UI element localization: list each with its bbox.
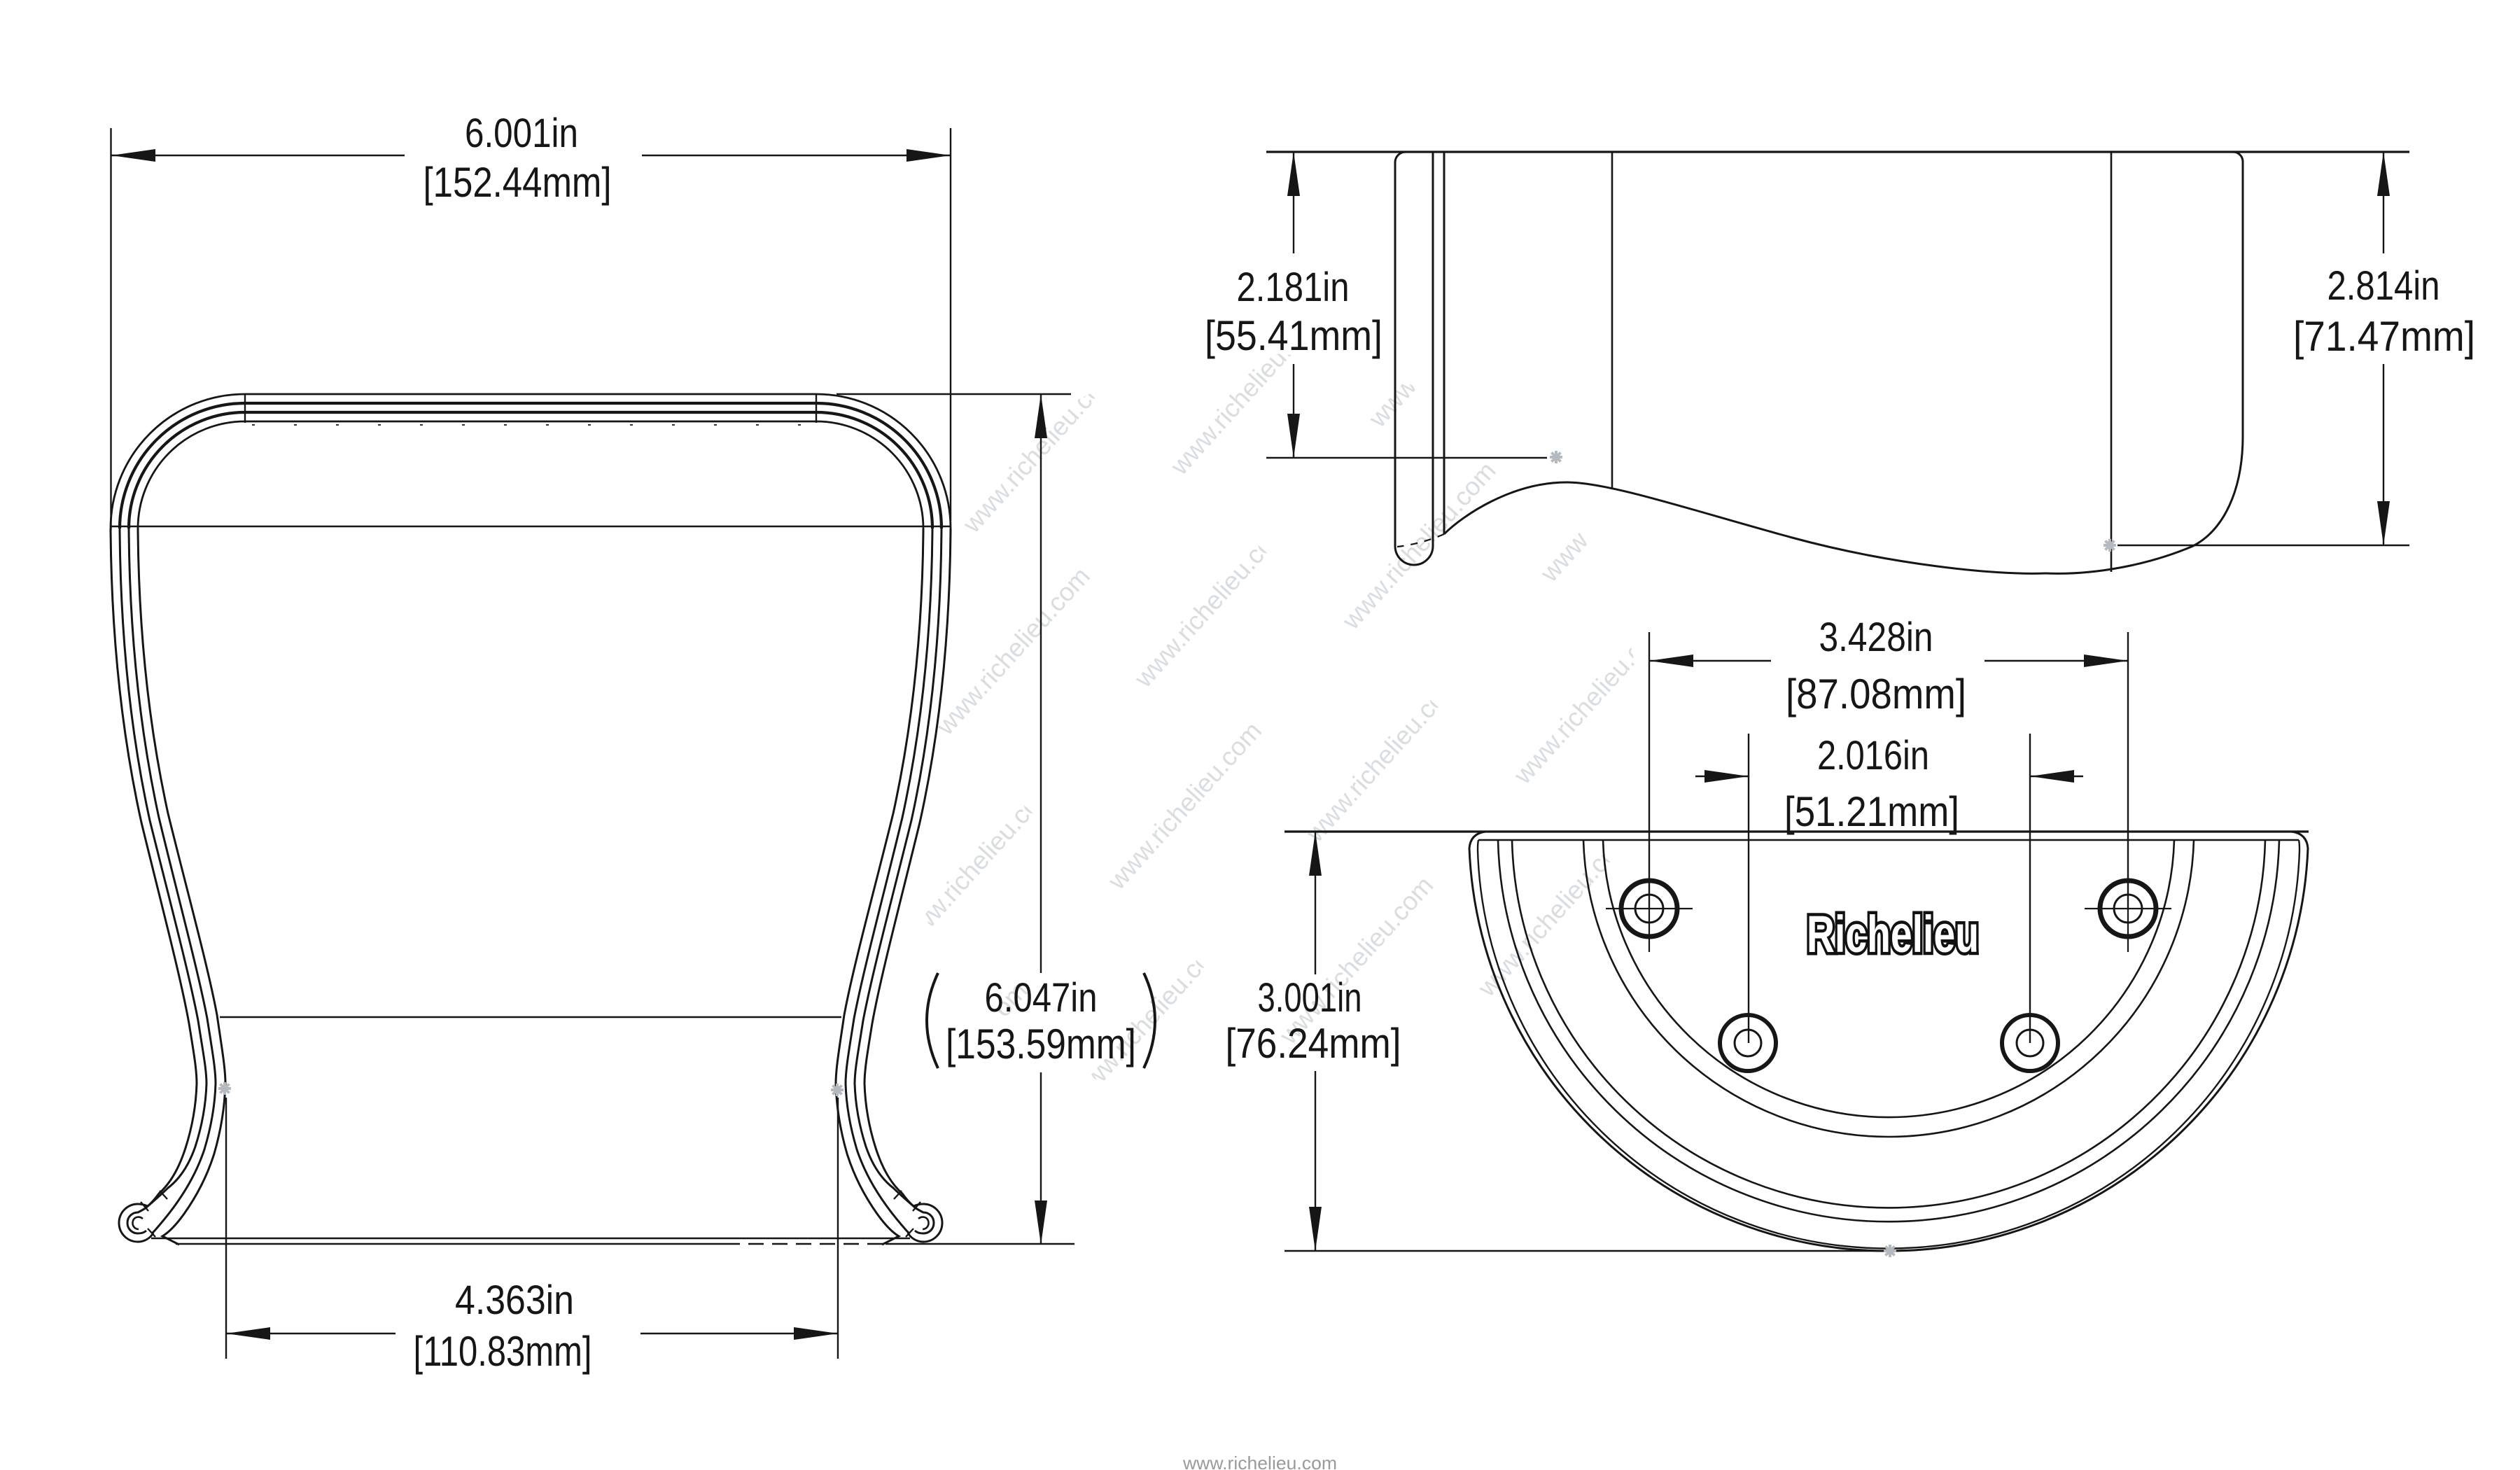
svg-text:Richelieu: Richelieu — [1807, 905, 1979, 963]
svg-text:2.016in: 2.016in — [1817, 733, 1929, 778]
svg-text:6.001in: 6.001in — [465, 111, 578, 156]
svg-text:[87.08mm]: [87.08mm] — [1786, 671, 1966, 717]
svg-text:[55.41mm]: [55.41mm] — [1205, 312, 1382, 359]
svg-text:[110.83mm]: [110.83mm] — [414, 1328, 592, 1375]
svg-text:3.428in: 3.428in — [1819, 615, 1933, 660]
svg-text:3.001in: 3.001in — [1258, 975, 1362, 1021]
svg-text:2.181in: 2.181in — [1237, 265, 1350, 310]
svg-text:[76.24mm]: [76.24mm] — [1226, 1020, 1401, 1067]
svg-text:[153.59mm]: [153.59mm] — [946, 1021, 1136, 1067]
svg-text:[152.44mm]: [152.44mm] — [423, 159, 612, 206]
svg-text:6.047in: 6.047in — [985, 975, 1098, 1021]
svg-text:[51.21mm]: [51.21mm] — [1784, 788, 1959, 835]
svg-text:[71.47mm]: [71.47mm] — [2293, 313, 2475, 360]
svg-text:www.richelieu.com: www.richelieu.com — [1182, 1452, 1337, 1470]
svg-text:4.363in: 4.363in — [455, 1277, 574, 1323]
svg-text:2.814in: 2.814in — [2327, 263, 2440, 309]
